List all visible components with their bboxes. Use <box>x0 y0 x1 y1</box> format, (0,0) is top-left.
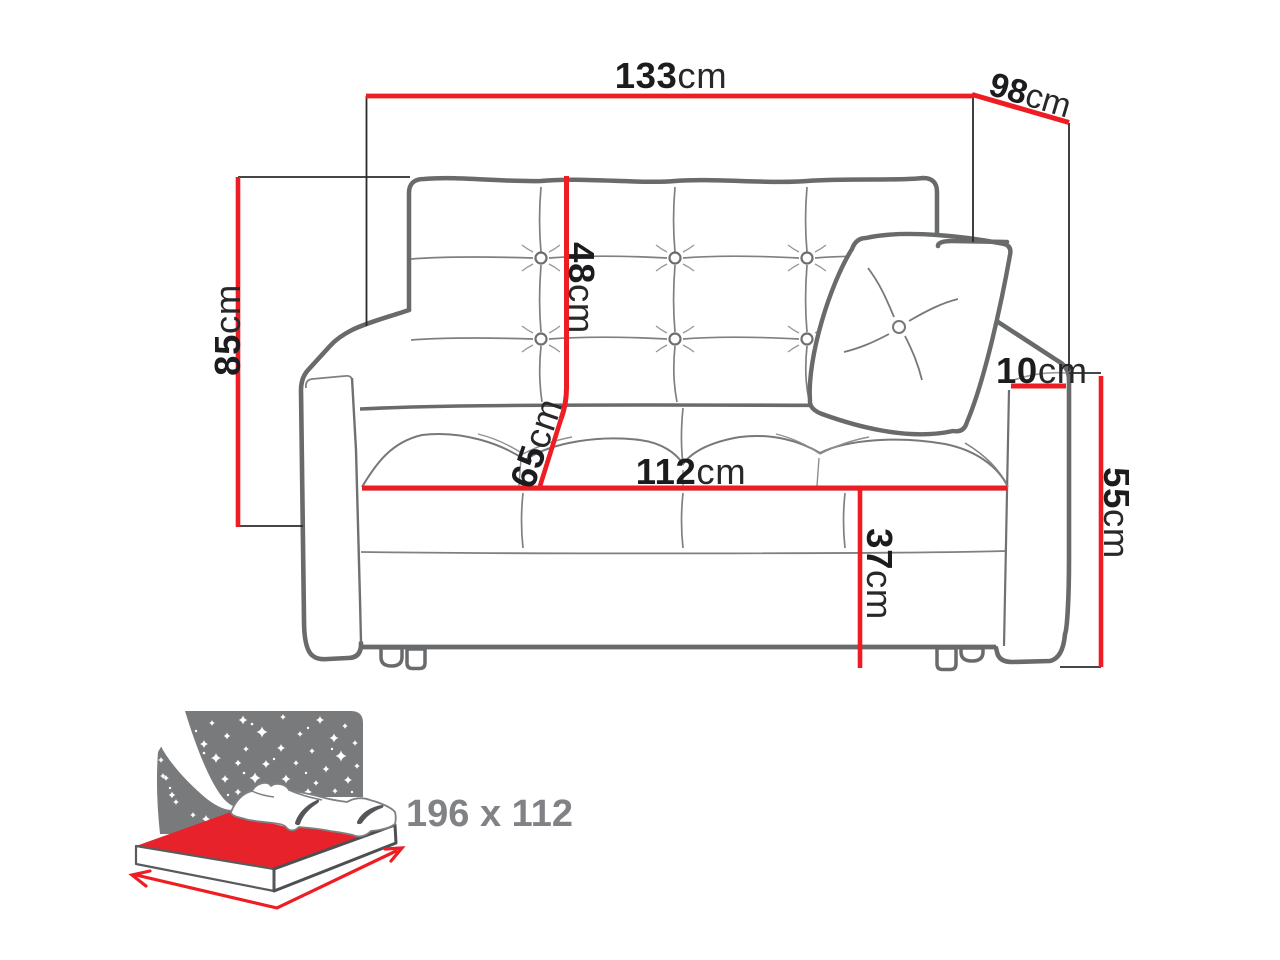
svg-text:196 x 112: 196 x 112 <box>406 793 573 835</box>
svg-text:10cm: 10cm <box>996 350 1088 391</box>
svg-text:133cm: 133cm <box>615 55 728 96</box>
svg-text:48cm: 48cm <box>561 242 602 334</box>
svg-text:85cm: 85cm <box>207 284 248 376</box>
svg-text:37cm: 37cm <box>859 528 900 620</box>
svg-text:55cm: 55cm <box>1096 467 1137 559</box>
svg-text:112cm: 112cm <box>636 451 747 492</box>
